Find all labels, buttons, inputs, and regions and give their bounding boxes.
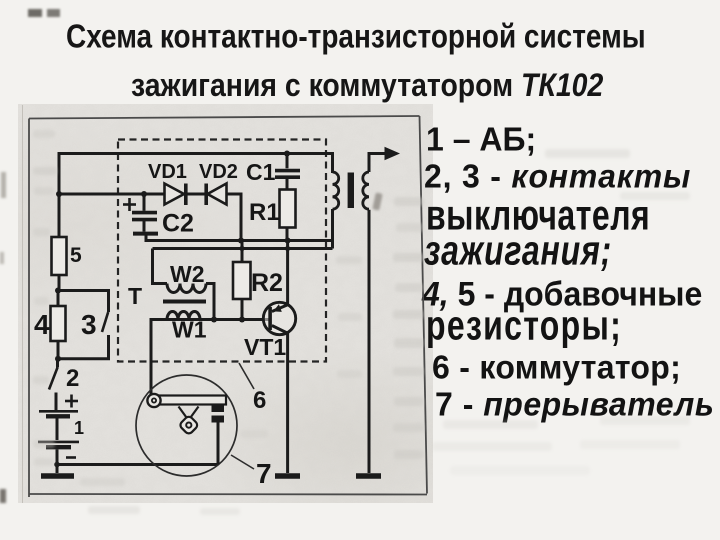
- svg-text:5: 5: [70, 244, 82, 267]
- svg-text:7: 7: [256, 458, 272, 489]
- svg-text:W2: W2: [170, 261, 205, 287]
- svg-text:4: 4: [34, 309, 50, 340]
- svg-text:VD1: VD1: [148, 161, 187, 183]
- svg-text:6: 6: [253, 387, 266, 414]
- svg-text:2: 2: [66, 365, 79, 392]
- svg-text:R2: R2: [251, 269, 283, 297]
- svg-text:VT1: VT1: [244, 334, 286, 360]
- svg-text:VD2: VD2: [199, 161, 238, 183]
- svg-text:R1: R1: [249, 199, 280, 226]
- svg-text:3: 3: [81, 309, 97, 340]
- svg-text:W1: W1: [172, 317, 207, 343]
- svg-text:Т: Т: [128, 283, 142, 309]
- svg-text:C2: C2: [162, 210, 194, 238]
- svg-text:1: 1: [74, 418, 84, 438]
- svg-text:C1: C1: [246, 159, 276, 185]
